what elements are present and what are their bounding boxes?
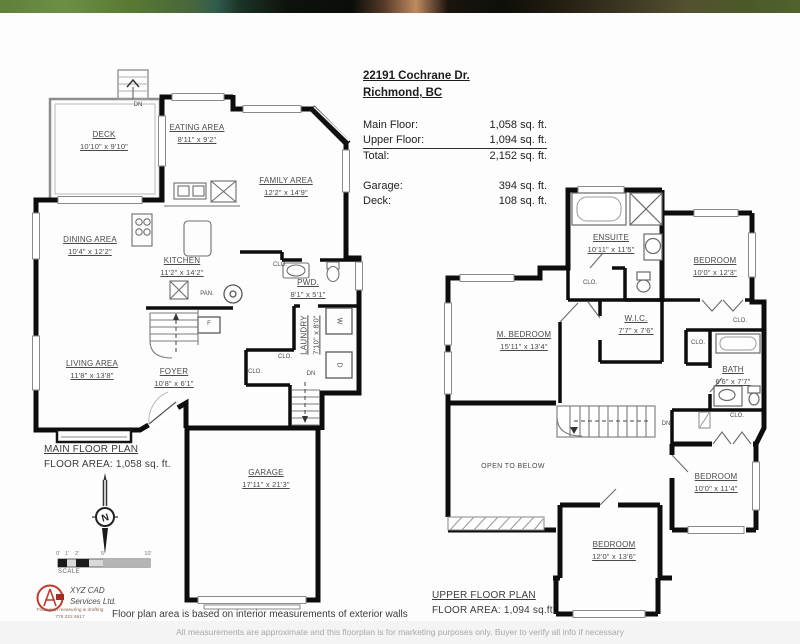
laundry-fixtures bbox=[198, 285, 352, 378]
property-address: 22191 Cochrane Dr. Richmond, BC bbox=[363, 68, 470, 103]
stairs-up bbox=[150, 310, 198, 358]
annotation-closet-2: CLO. bbox=[278, 354, 292, 360]
address-line2: Richmond, BC bbox=[363, 85, 470, 102]
room-label-powder: PWD. 8'1" x 5'1" bbox=[291, 277, 326, 300]
garage-outline bbox=[187, 428, 318, 600]
room-label-foyer: FOYER 10'8" x 6'1" bbox=[154, 366, 193, 389]
measurement-note: Floor plan area is based on interior mea… bbox=[112, 609, 408, 620]
company-name: XYZ CAD Services Ltd. bbox=[70, 586, 116, 608]
fireplace bbox=[312, 108, 348, 144]
room-label-bath: BATH 6'6" x 7'7" bbox=[716, 364, 751, 387]
scale-bar bbox=[58, 559, 150, 567]
room-label-master-bedroom: M. BEDROOM 15'11" x 13'4" bbox=[497, 329, 551, 352]
area-row-upper: Upper Floor: 1,094 sq. ft. bbox=[363, 133, 547, 149]
room-label-laundry: LAUNDRY 7'10" x 8'0" bbox=[298, 315, 321, 355]
room-label-bedroom-bottom: BEDROOM 12'0" x 13'6" bbox=[592, 539, 636, 562]
annotation-upper-dn: DN bbox=[662, 421, 671, 427]
room-label-dining-area: DINING AREA 10'4" x 12'2" bbox=[63, 234, 117, 257]
area-row-total: Total: 2,152 sq. ft. bbox=[363, 149, 547, 164]
address-line1: 22191 Cochrane Dr. bbox=[363, 68, 470, 85]
room-label-eating-area: EATING AREA 8'11" x 9'2" bbox=[170, 122, 225, 145]
room-label-deck: DECK 10'10" x 9'10" bbox=[80, 129, 128, 152]
stairs-down-arrow bbox=[302, 416, 308, 423]
annotation-furnace: F bbox=[207, 321, 211, 327]
upper-floor-title: UPPER FLOOR PLAN FLOOR AREA: 1,094 sq.ft… bbox=[432, 589, 556, 618]
room-label-bedroom-right: BEDROOM 10'0" x 11'4" bbox=[694, 471, 737, 494]
room-label-wic: W.I.C. 7'7" x 7'6" bbox=[619, 313, 654, 336]
annotation-dryer: D bbox=[336, 362, 343, 367]
scale-tick-1: 1' bbox=[65, 551, 69, 557]
scale-caption: SCALE bbox=[58, 569, 80, 575]
annotation-pantry: PAN. bbox=[200, 291, 214, 297]
room-label-living-area: LIVING AREA 11'8" x 13'8" bbox=[66, 358, 118, 381]
annotation-closet-1: CLO. bbox=[273, 262, 287, 268]
annotation-deck-dn: DN bbox=[134, 102, 143, 108]
stairs-up-arrow bbox=[173, 313, 179, 320]
area-row-garage: Garage: 394 sq. ft. bbox=[363, 179, 547, 194]
annotation-basement-dn: DN bbox=[307, 371, 316, 377]
scale-tick-10: 10' bbox=[144, 551, 151, 557]
scale-tick-5: 5' bbox=[101, 551, 105, 557]
room-label-bedroom-tr: BEDROOM 10'0" x 12'3" bbox=[693, 255, 737, 278]
scale-tick-2: 2' bbox=[75, 551, 79, 557]
annotation-washer: W bbox=[336, 318, 343, 325]
main-floor-title: MAIN FLOOR PLAN FLOOR AREA: 1,058 sq. ft… bbox=[44, 443, 171, 472]
disclaimer-text: All measurements are approximate and thi… bbox=[0, 627, 800, 637]
annotation-upper-closet-3: CLO. bbox=[691, 340, 705, 346]
annotation-upper-closet-1: CLO. bbox=[583, 280, 597, 286]
room-label-open-to-below: OPEN TO BELOW bbox=[481, 462, 545, 473]
room-label-family-area: FAMILY AREA 12'2" x 14'9" bbox=[259, 175, 312, 198]
company-contact: Floor plan measuring & drafting 778 322 … bbox=[30, 607, 110, 621]
room-label-garage: GARAGE 17'11" x 21'3" bbox=[242, 467, 290, 490]
main-floor-interior-walls bbox=[146, 252, 359, 428]
area-row-deck: Deck: 108 sq. ft. bbox=[363, 194, 547, 209]
bay-window bbox=[57, 430, 131, 442]
area-row-main: Main Floor: 1,058 sq. ft. bbox=[363, 118, 547, 133]
floorplan-page: N 22191 Cochrane Dr. Richmond, BC Main F… bbox=[0, 0, 800, 644]
compass: N bbox=[92, 473, 118, 554]
scale-tick-0: 0' bbox=[56, 551, 60, 557]
annotation-upper-closet-4: CLO. bbox=[730, 413, 744, 419]
room-label-kitchen: KITCHEN 11'2" x 14'2" bbox=[160, 255, 203, 278]
area-extras: Garage: 394 sq. ft. Deck: 108 sq. ft. bbox=[363, 179, 547, 209]
annotation-closet-3: CLO. bbox=[248, 369, 262, 375]
area-summary-table: Main Floor: 1,058 sq. ft. Upper Floor: 1… bbox=[363, 118, 547, 209]
room-label-ensuite: ENSUITE 10'11" x 11'5" bbox=[588, 232, 635, 255]
annotation-upper-closet-2: CLO. bbox=[733, 318, 747, 324]
front-door-opening bbox=[146, 403, 180, 429]
